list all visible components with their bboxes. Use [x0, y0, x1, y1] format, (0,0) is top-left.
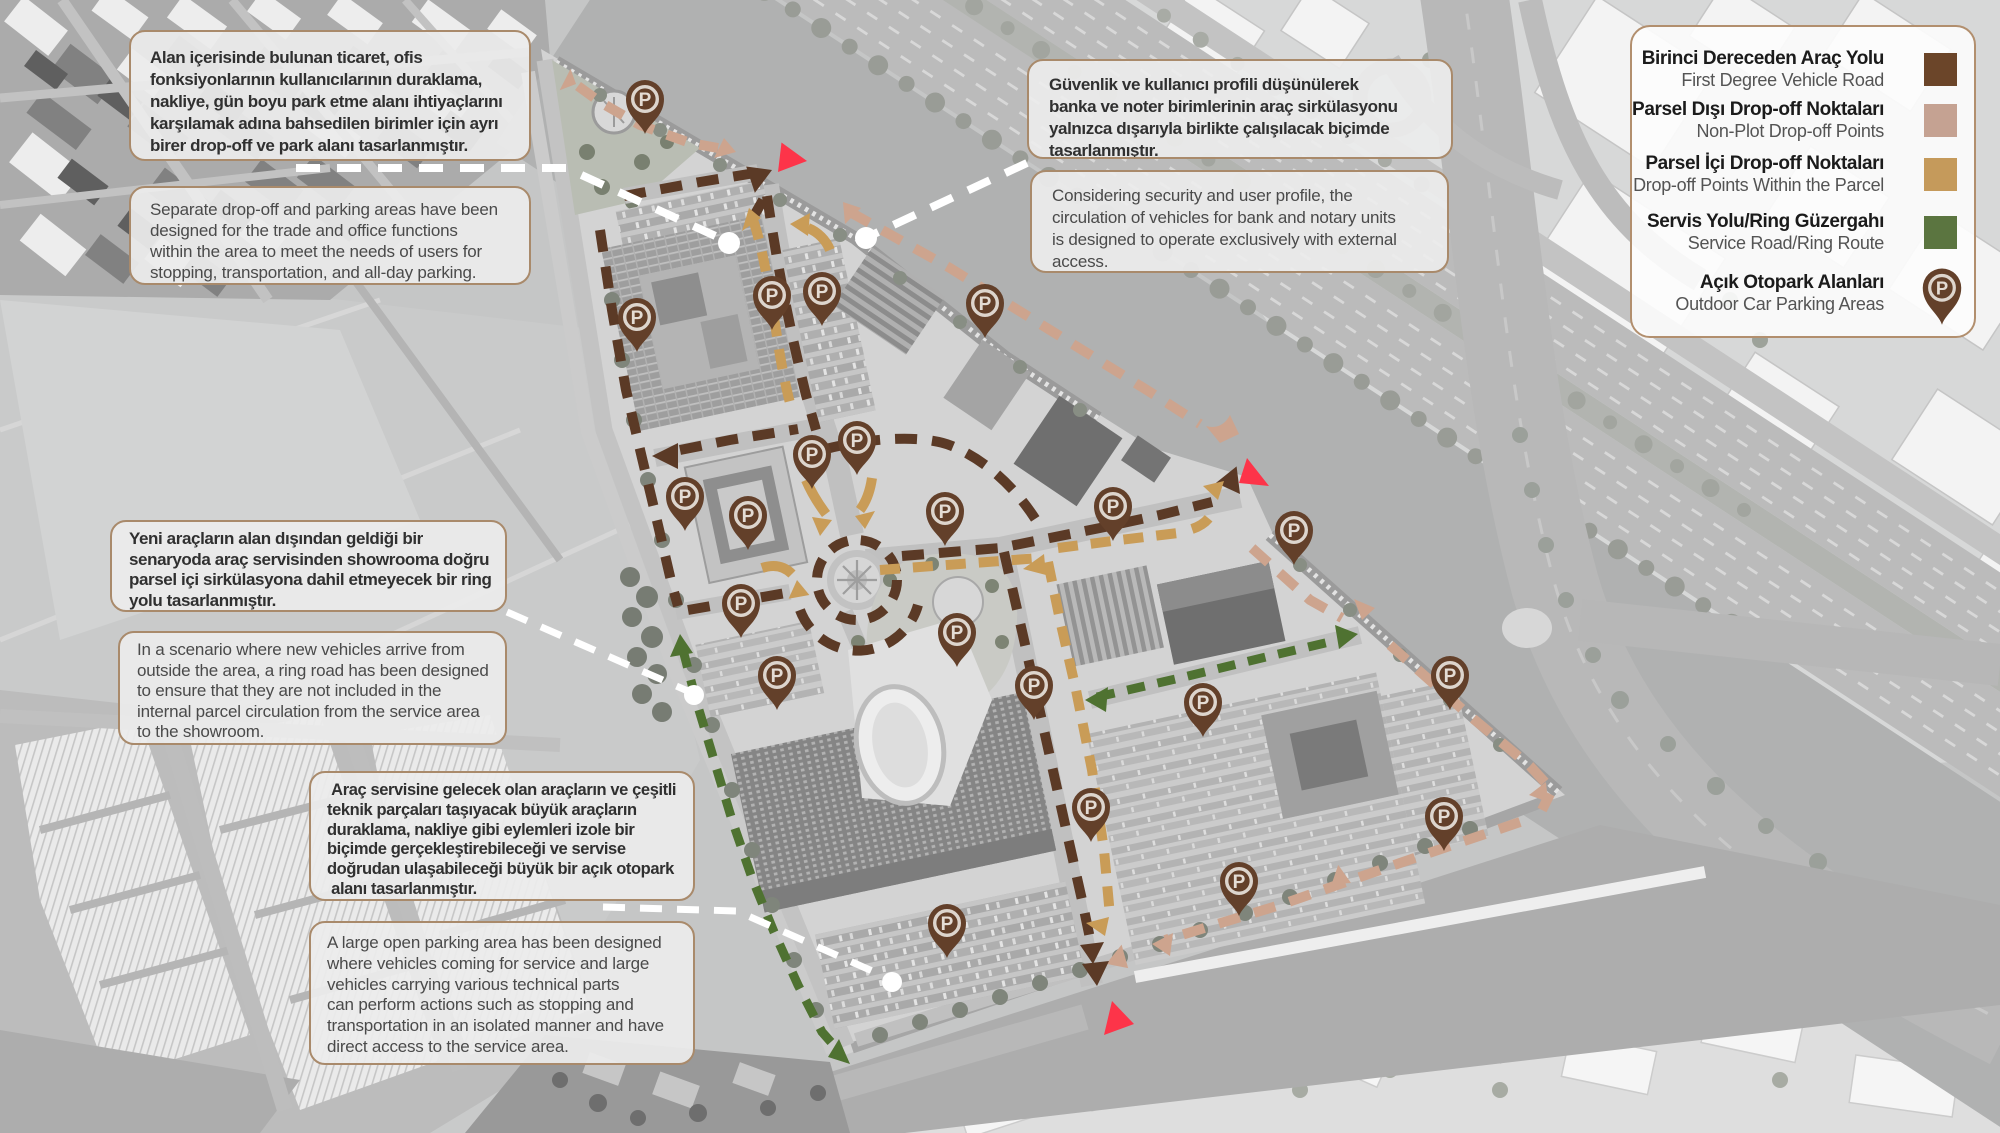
- svg-text:P: P: [1936, 277, 1948, 298]
